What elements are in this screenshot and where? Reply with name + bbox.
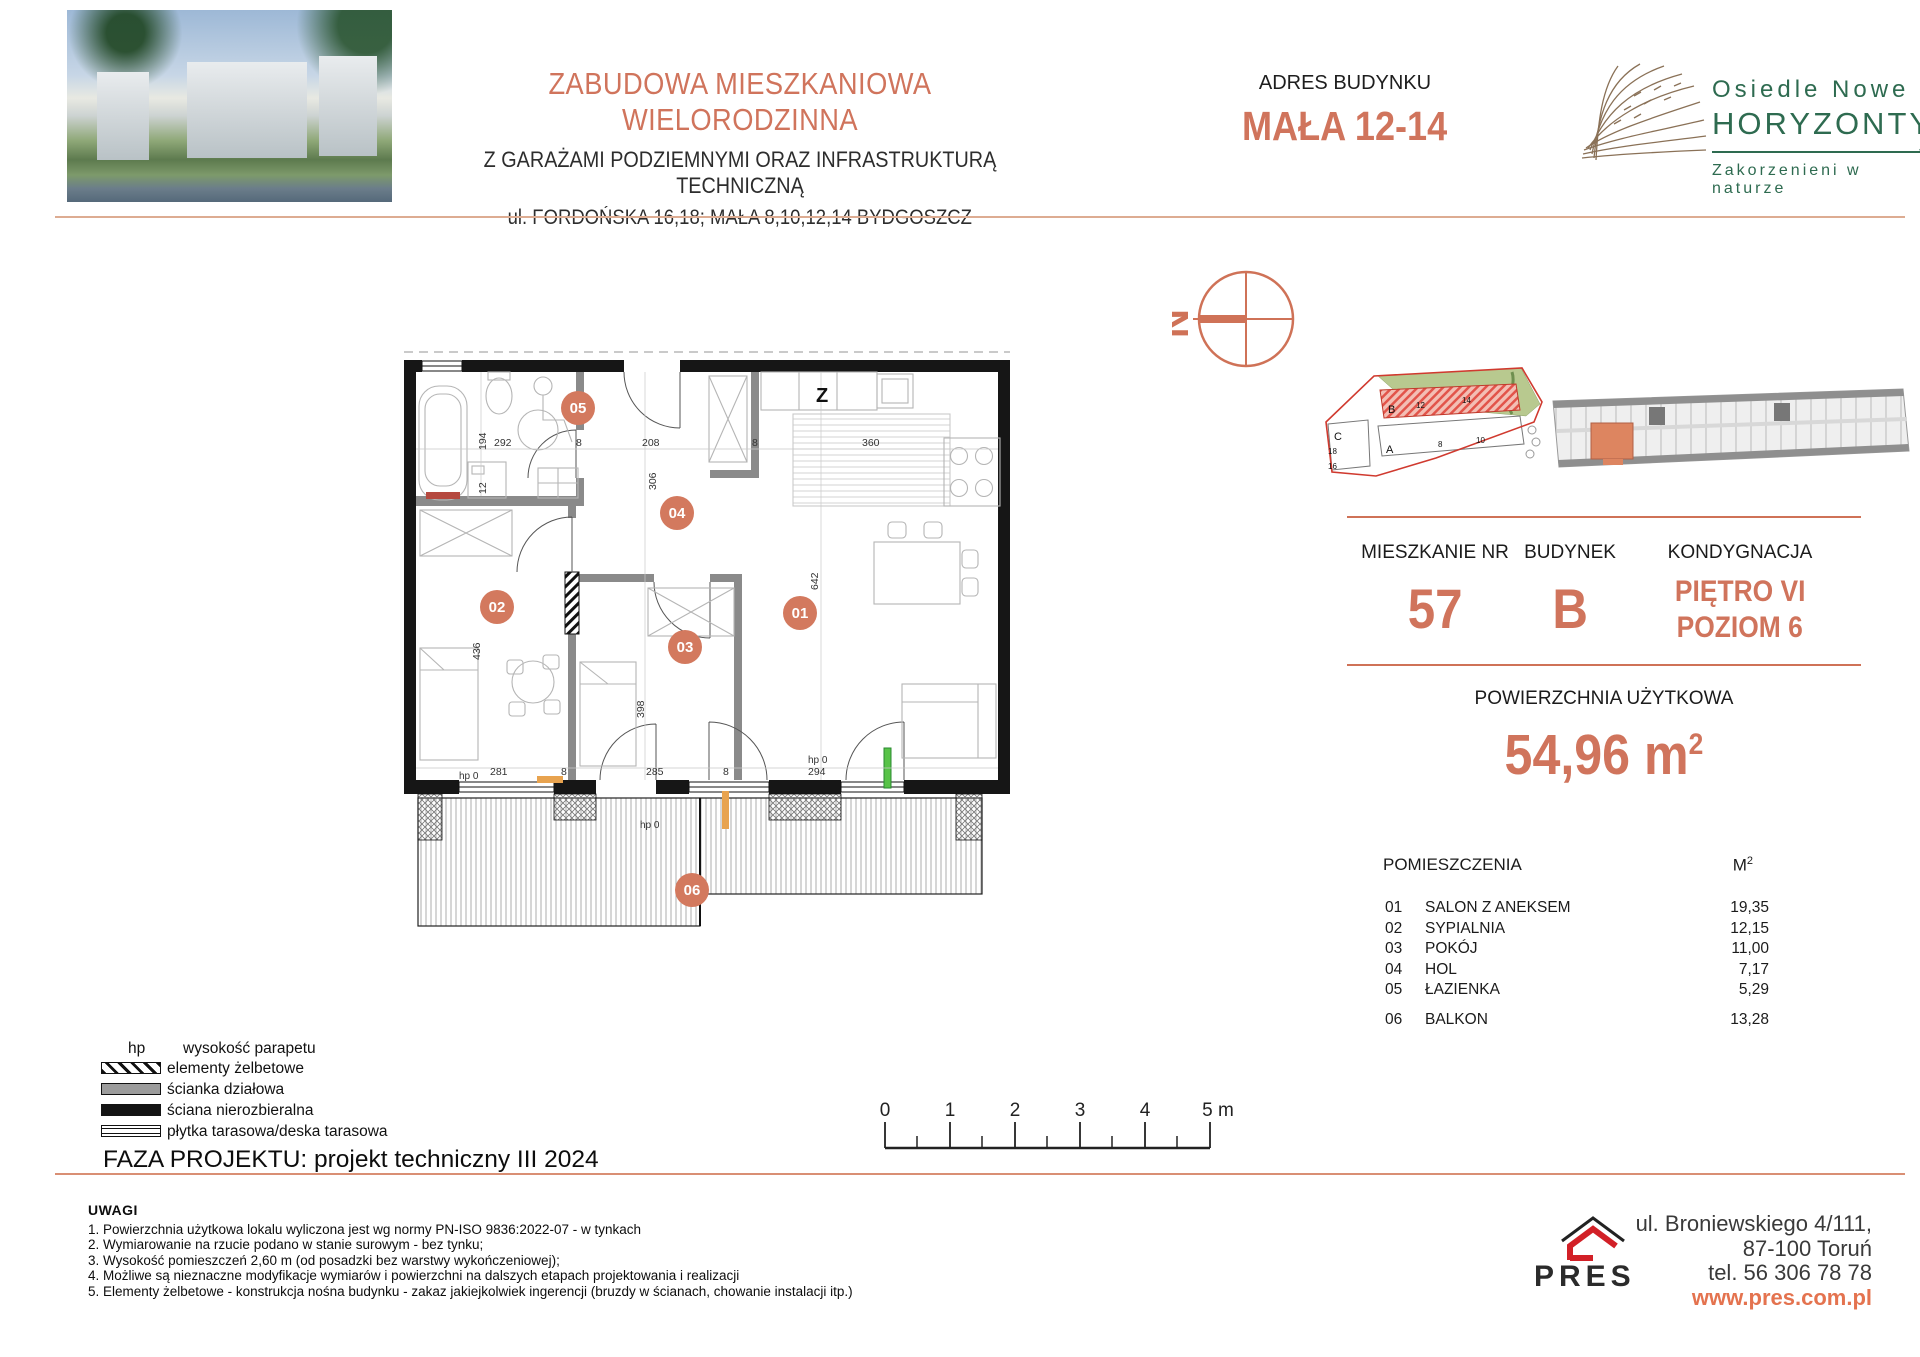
storey-value: PIĘTRO VI POZIOM 6 bbox=[1640, 574, 1840, 646]
site-plan-estate: C 18 16 B 12 14 A 8 10 bbox=[1316, 360, 1546, 485]
dim-294: 294 bbox=[808, 766, 826, 778]
building-address-label: ADRES BUDYNKU bbox=[1195, 72, 1495, 95]
apartment-card-page: ZABUDOWA MIESZKANIOWA WIELORODZINNA Z GA… bbox=[0, 0, 1920, 1357]
compass-letter: N bbox=[1172, 309, 1197, 338]
notes-title: UWAGI bbox=[88, 1203, 853, 1219]
rooms-table: POMIESZCZENIA M2 01SALON Z ANEKSEM19,35 … bbox=[1383, 855, 1769, 1031]
dim-292: 292 bbox=[494, 437, 512, 449]
legend-hp-row: hp wysokość parapetu bbox=[128, 1040, 145, 1058]
developer-phone: tel. 56 306 78 78 bbox=[1600, 1261, 1872, 1286]
dim-8d: 8 bbox=[723, 766, 729, 778]
furniture bbox=[419, 372, 1000, 766]
project-address-line: ul. FORDOŃSKA 16,18; MAŁA 8,10,12,14 BYD… bbox=[440, 206, 1040, 230]
dim-398: 398 bbox=[635, 700, 647, 718]
site-label-18: 18 bbox=[1328, 447, 1337, 456]
room-row-05: 05ŁAZIENKA5,29 bbox=[1383, 981, 1769, 1002]
note-5: 5. Elementy żelbetowe - konstrukcja nośn… bbox=[88, 1284, 853, 1300]
project-photo bbox=[67, 10, 392, 202]
room-row-04: 04HOL7,17 bbox=[1383, 961, 1769, 982]
site-label-8: 8 bbox=[1438, 440, 1443, 449]
toilet-icon bbox=[486, 378, 512, 414]
photo-building-right bbox=[319, 56, 377, 156]
site-label-B: B bbox=[1388, 404, 1395, 416]
dim-8c: 8 bbox=[561, 766, 567, 778]
legend-swatch-wall bbox=[101, 1104, 161, 1116]
svg-text:1: 1 bbox=[945, 1100, 956, 1121]
photo-building-center bbox=[187, 62, 307, 158]
rooms-table-header: POMIESZCZENIA M2 bbox=[1383, 855, 1769, 875]
badge-06: 06 bbox=[684, 882, 701, 899]
site-label-12: 12 bbox=[1416, 401, 1425, 410]
note-1: 1. Powierzchnia użytkowa lokalu wyliczon… bbox=[88, 1222, 853, 1238]
svg-text:5 m: 5 m bbox=[1202, 1100, 1234, 1121]
badge-03: 03 bbox=[677, 639, 694, 656]
estate-logo-icon bbox=[1578, 58, 1708, 166]
badge-01: 01 bbox=[792, 605, 809, 622]
dim-8a: 8 bbox=[576, 437, 582, 449]
legend-swatch-concrete bbox=[101, 1062, 161, 1074]
dim-12: 12 bbox=[477, 482, 489, 494]
kitchen-z-label: Z bbox=[816, 385, 828, 407]
sofa-icon bbox=[902, 684, 996, 758]
footer-divider bbox=[55, 1173, 1905, 1175]
dim-642: 642 bbox=[809, 572, 821, 590]
logo-tagline: Zakorzenieni w naturze bbox=[1712, 162, 1920, 198]
project-subtitle: Z GARAŻAMI PODZIEMNYMI ORAZ INFRASTRUKTU… bbox=[440, 147, 1040, 199]
dim-281: 281 bbox=[490, 766, 508, 778]
estate-logo-text: Osiedle Nowe HORYZONTY ‹‹ Zakorzenieni w… bbox=[1712, 76, 1920, 198]
dim-hp0-c: hp 0 bbox=[808, 755, 828, 766]
badge-02: 02 bbox=[489, 599, 506, 616]
dim-hp0-a: hp 0 bbox=[459, 771, 479, 782]
developer-street: ul. Broniewskiego 4/111, bbox=[1600, 1212, 1872, 1237]
svg-text:0: 0 bbox=[880, 1100, 891, 1121]
rooms-header-unit: M2 bbox=[1733, 855, 1753, 876]
storey-line2: POZIOM 6 bbox=[1677, 610, 1803, 646]
svg-text:4: 4 bbox=[1140, 1100, 1151, 1121]
building-value: B bbox=[1520, 576, 1620, 641]
note-3: 3. Wysokość pomieszczeń 2,60 m (od posad… bbox=[88, 1253, 853, 1269]
apartment-number-label: MIESZKANIE NR bbox=[1350, 542, 1520, 564]
project-title: ZABUDOWA MIESZKANIOWA WIELORODZINNA bbox=[440, 66, 1040, 138]
badge-04: 04 bbox=[669, 505, 686, 522]
room-row-06: 06BALKON13,28 bbox=[1383, 1011, 1769, 1032]
room-row-01: 01SALON Z ANEKSEM19,35 bbox=[1383, 899, 1769, 920]
header-divider bbox=[55, 216, 1905, 218]
logo-rule: ‹‹ bbox=[1712, 151, 1920, 153]
apartment-number-value: 57 bbox=[1350, 576, 1520, 641]
room-row-02: 02SYPIALNIA12,15 bbox=[1383, 920, 1769, 941]
usable-area-value: 54,96 m2 bbox=[1420, 722, 1788, 788]
project-phase: FAZA PROJEKTU: projekt techniczny III 20… bbox=[103, 1146, 599, 1174]
balcony bbox=[418, 794, 982, 926]
storey-line1: PIĘTRO VI bbox=[1675, 574, 1806, 610]
developer-website[interactable]: www.pres.com.pl bbox=[1600, 1286, 1872, 1311]
site-label-14: 14 bbox=[1462, 396, 1471, 405]
tub-step-marker bbox=[426, 492, 460, 499]
svg-text:3: 3 bbox=[1075, 1100, 1086, 1121]
dim-8b: 8 bbox=[752, 437, 758, 449]
room-row-03: 03POKÓJ11,00 bbox=[1383, 940, 1769, 961]
info-divider-bottom bbox=[1347, 664, 1861, 666]
logo-line2: HORYZONTY bbox=[1712, 106, 1920, 142]
legend-hp-abbr: hp bbox=[128, 1040, 145, 1057]
site-label-16: 16 bbox=[1328, 462, 1337, 471]
concrete-column bbox=[565, 572, 579, 634]
logo-line1: Osiedle Nowe bbox=[1712, 76, 1920, 104]
legend-swatch-partition bbox=[101, 1083, 161, 1095]
scale-labels: 0 1 2 3 4 5 m bbox=[880, 1100, 1234, 1121]
north-compass-icon: N bbox=[1172, 262, 1307, 374]
badge-05: 05 bbox=[570, 400, 587, 417]
photo-building-left bbox=[97, 72, 149, 160]
dim-208: 208 bbox=[642, 437, 660, 449]
svg-text:2: 2 bbox=[1010, 1100, 1021, 1121]
building-label: BUDYNEK bbox=[1520, 542, 1620, 564]
storey-label: KONDYGNACJA bbox=[1640, 542, 1840, 564]
developer-address: ul. Broniewskiego 4/111, 87-100 Toruń te… bbox=[1600, 1212, 1872, 1310]
building-address-block: ADRES BUDYNKU MAŁA 12-14 bbox=[1195, 72, 1495, 150]
dim-436: 436 bbox=[471, 642, 483, 660]
dim-306: 306 bbox=[647, 472, 659, 490]
rooms-header-name: POMIESZCZENIA bbox=[1383, 855, 1522, 874]
site-label-C: C bbox=[1334, 431, 1342, 443]
legend-swatch-deck bbox=[101, 1125, 161, 1137]
wheelchair-icon bbox=[518, 410, 558, 450]
site-label-A: A bbox=[1386, 444, 1394, 456]
note-2: 2. Wymiarowanie na rzucie podano w stani… bbox=[88, 1237, 853, 1253]
building-address-value: MAŁA 12-14 bbox=[1195, 103, 1495, 150]
dim-285: 285 bbox=[646, 766, 664, 778]
info-divider-top bbox=[1347, 516, 1861, 518]
legend-hp-label: wysokość parapetu bbox=[183, 1040, 316, 1058]
highlighted-unit bbox=[1591, 423, 1633, 459]
floor-plan: 194 292 12 8 208 306 8 360 642 436 398 2… bbox=[404, 350, 1010, 950]
floor-location-plan bbox=[1549, 385, 1914, 475]
threshold-marker bbox=[537, 776, 563, 783]
note-4: 4. Możliwe są nieznaczne modyfikacje wym… bbox=[88, 1268, 853, 1284]
scale-bar: 0 1 2 3 4 5 m bbox=[870, 1096, 1260, 1158]
project-title-block: ZABUDOWA MIESZKANIOWA WIELORODZINNA Z GA… bbox=[440, 66, 1040, 230]
threshold-marker-2 bbox=[722, 791, 729, 829]
usable-area-label: POWIERZCHNIA UŻYTKOWA bbox=[1420, 688, 1788, 710]
dim-hp0-b: hp 0 bbox=[640, 820, 660, 831]
notes-block: UWAGI 1. Powierzchnia użytkowa lokalu wy… bbox=[88, 1203, 853, 1299]
developer-city: 87-100 Toruń bbox=[1600, 1237, 1872, 1262]
dim-194: 194 bbox=[477, 432, 489, 450]
site-label-10: 10 bbox=[1476, 436, 1485, 445]
dim-360: 360 bbox=[862, 437, 880, 449]
